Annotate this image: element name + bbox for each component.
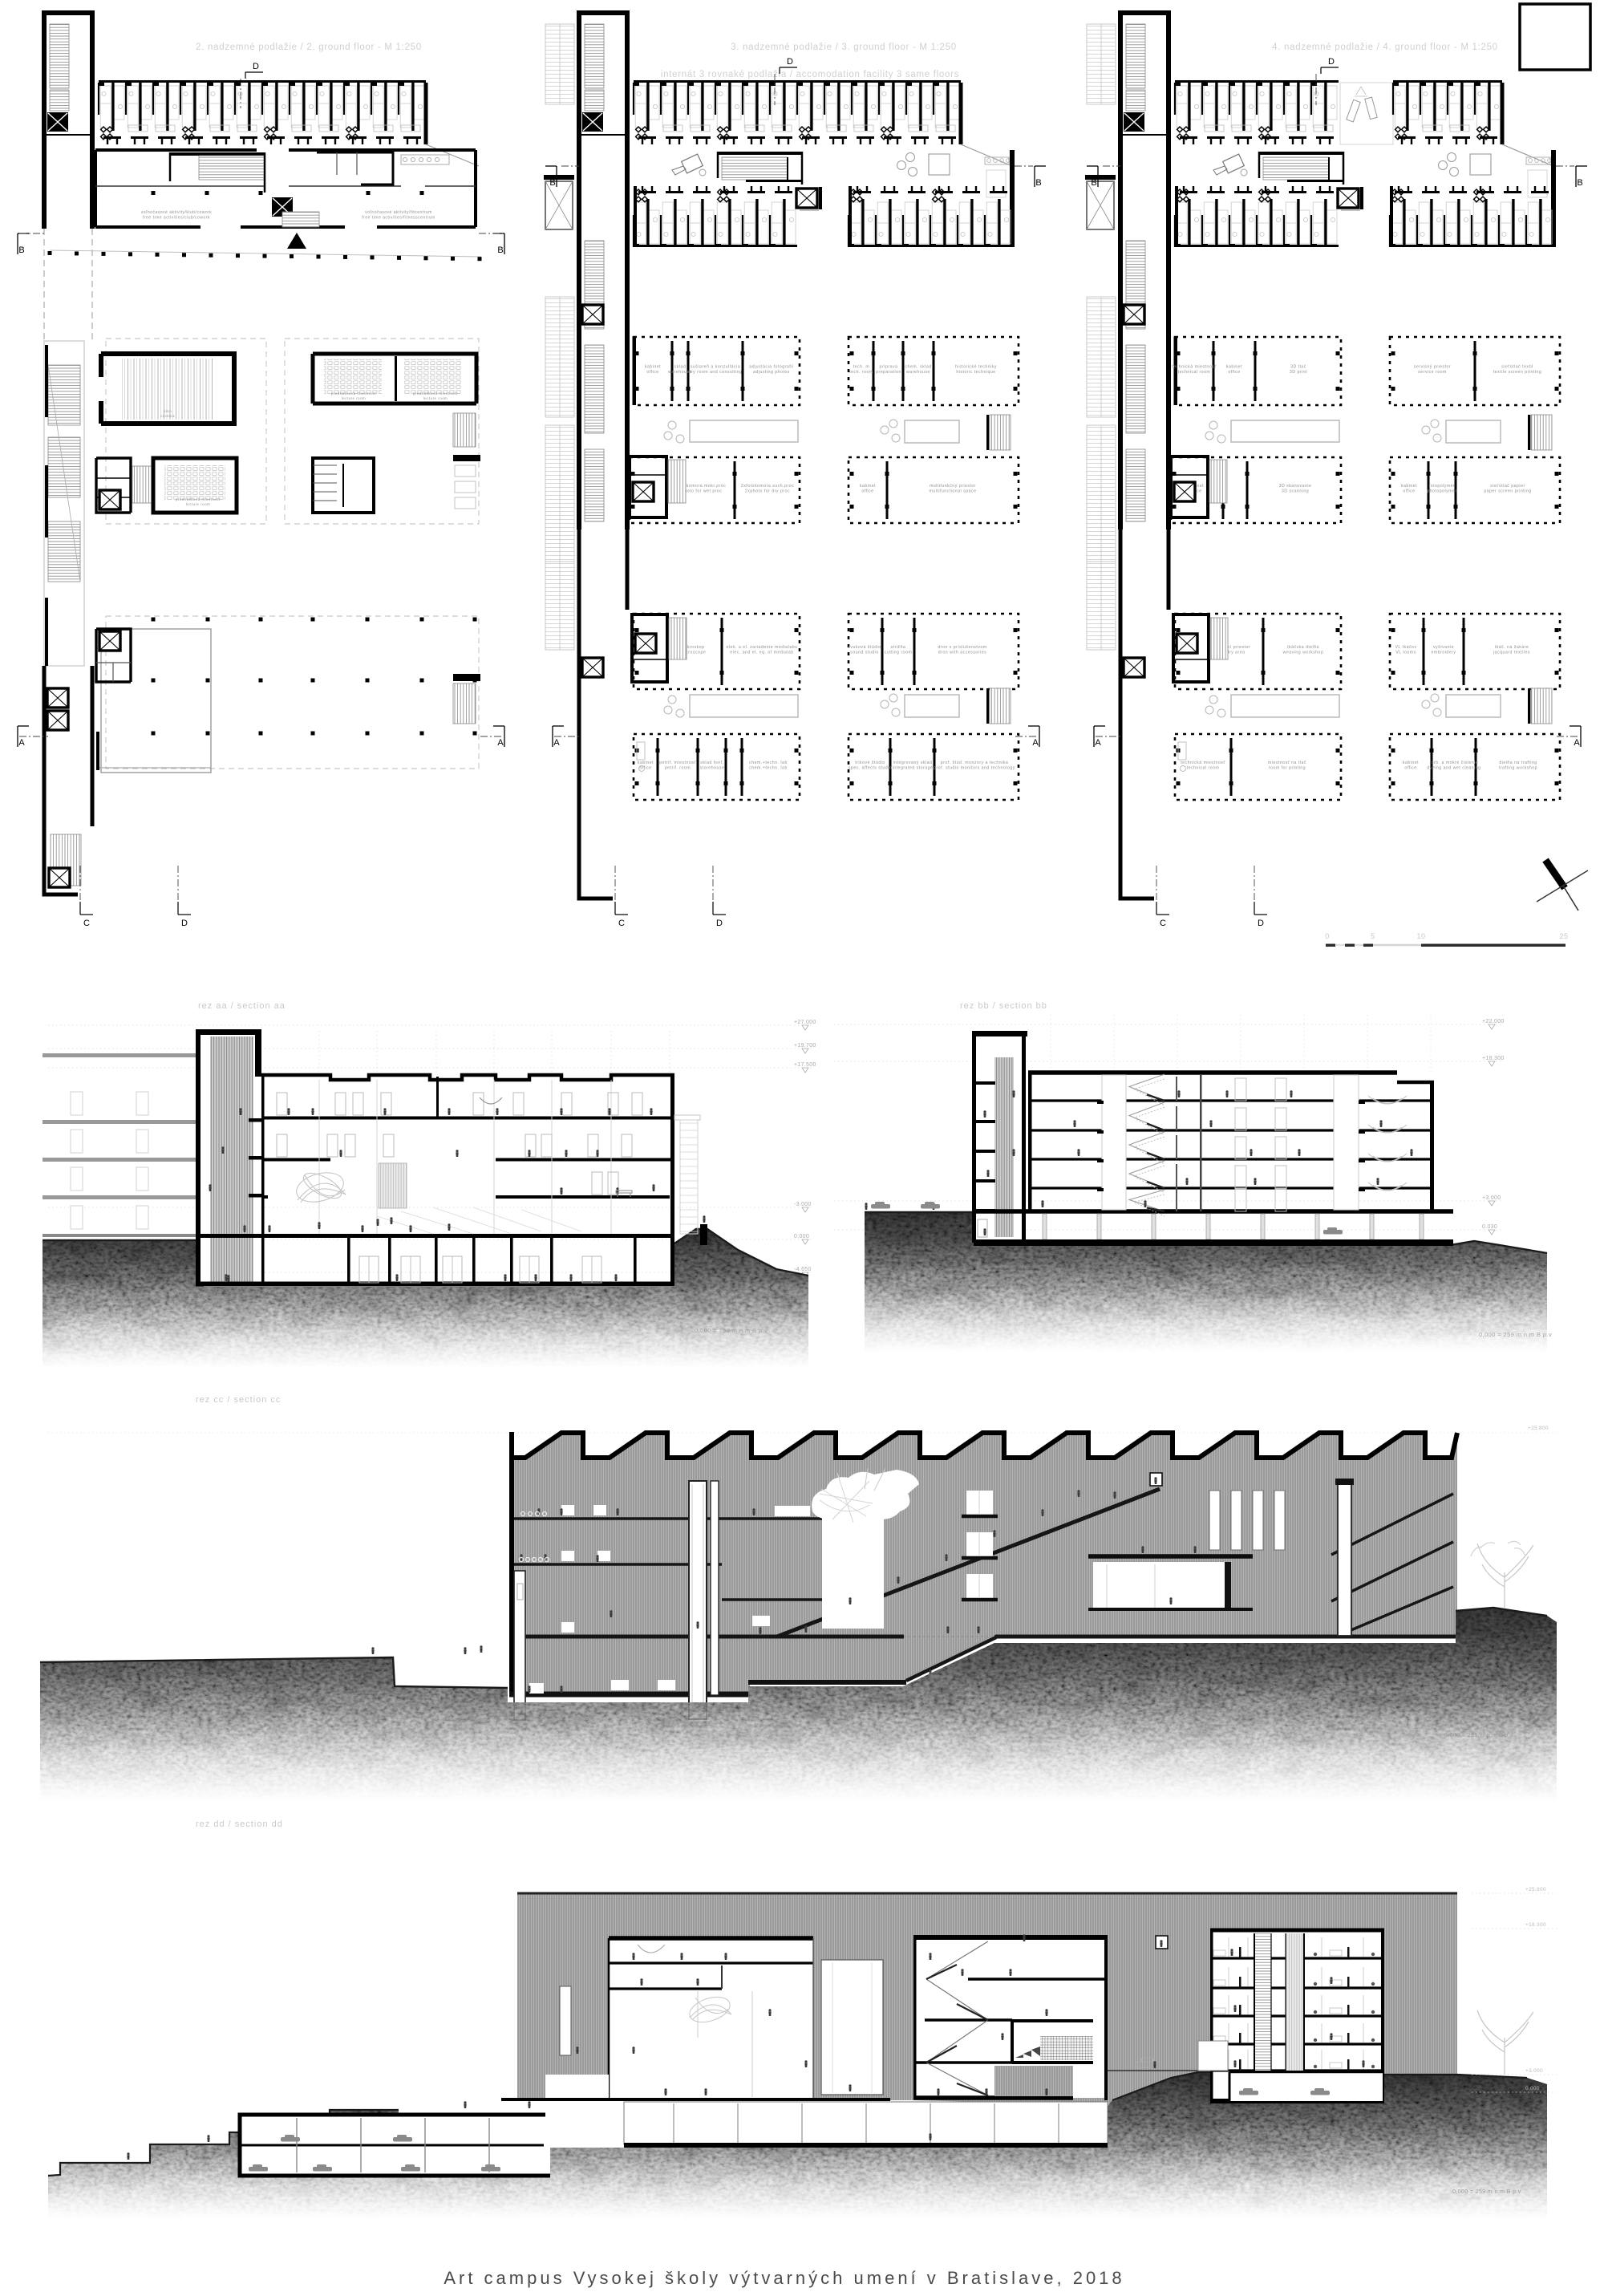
- svg-text:office: office: [1404, 766, 1416, 771]
- svg-text:+18.300: +18.300: [1482, 1056, 1505, 1061]
- svg-text:VL looms: VL looms: [1395, 651, 1416, 655]
- svg-text:voľnočasové aktivity/klub/cowo: voľnočasové aktivity/klub/cowork: [141, 210, 213, 215]
- svg-text:petrif. room: petrif. room: [665, 766, 691, 771]
- svg-text:B: B: [1091, 178, 1096, 188]
- svg-text:tech. room: tech. room: [849, 370, 873, 375]
- svg-text:kabinet: kabinet: [645, 365, 661, 370]
- svg-text:dron with accessories: dron with accessories: [938, 651, 986, 655]
- svg-text:10: 10: [1416, 932, 1425, 940]
- svg-text:office: office: [639, 766, 651, 771]
- svg-text:dyeing and wet cleaning: dyeing and wet cleaning: [1427, 766, 1480, 771]
- svg-text:0: 0: [1325, 932, 1330, 940]
- svg-text:technická miestnosť: technická miestnosť: [1172, 365, 1217, 370]
- svg-text:prednášková miestnosť: prednášková miestnosť: [331, 391, 376, 396]
- svg-text:-3.000: -3.000: [794, 1202, 812, 1207]
- svg-text:prof. studio monitors and tech: prof. studio monitors and technology: [934, 766, 1015, 771]
- svg-text:lecture room: lecture room: [186, 502, 210, 506]
- svg-text:lecture room: lecture room: [342, 396, 366, 400]
- svg-text:office: office: [1228, 370, 1240, 375]
- svg-text:sieťotlač papier: sieťotlač papier: [1490, 484, 1525, 489]
- svg-text:A: A: [1574, 738, 1580, 748]
- svg-text:kabinet: kabinet: [1403, 761, 1419, 765]
- svg-text:A: A: [1032, 738, 1039, 748]
- svg-text:paper screen printing: paper screen printing: [1484, 489, 1531, 494]
- svg-text:historic technique: historic technique: [956, 370, 995, 375]
- svg-text:rez cc / section cc: rez cc / section cc: [196, 1395, 281, 1405]
- svg-text:Art campus Vysokej školy výtva: Art campus Vysokej školy výtvarných umen…: [444, 2268, 1124, 2288]
- svg-text:tkáčska dielňa: tkáčska dielňa: [1287, 645, 1319, 650]
- svg-text:C: C: [618, 919, 625, 928]
- svg-text:sušiareň a konzultácia: sušiareň a konzultácia: [691, 365, 740, 370]
- svg-text:free time activities/club/cowo: free time activities/club/cowork: [143, 216, 210, 221]
- svg-text:trikové štúdio: trikové štúdio: [855, 761, 885, 765]
- svg-text:elek. a el. zariadenie mediala: elek. a el. zariadenie medialabu: [727, 645, 798, 650]
- svg-text:VL tkáčov: VL tkáčov: [1395, 645, 1416, 650]
- svg-text:internát 3 rovnaké podlažia /: internát 3 rovnaké podlažia / accomodati…: [661, 70, 959, 79]
- svg-text:0,000 = 259 m n.m B p.v: 0,000 = 259 m n.m B p.v: [1452, 2189, 1521, 2195]
- svg-text:vyšívanie: vyšívanie: [1433, 645, 1454, 650]
- svg-text:kabinet: kabinet: [860, 484, 876, 489]
- svg-text:room for printing: room for printing: [1269, 766, 1306, 771]
- svg-text:prof. štúd. monzory a technika: prof. štúd. monzory a technika: [941, 761, 1009, 765]
- svg-text:spec. affects studio: spec. affects studio: [849, 766, 892, 771]
- svg-text:A: A: [497, 738, 504, 748]
- svg-text:B: B: [497, 245, 503, 255]
- svg-text:storehouse: storehouse: [700, 766, 725, 771]
- svg-text:kabinet: kabinet: [638, 761, 654, 765]
- svg-text:embroidery: embroidery: [1432, 651, 1456, 655]
- svg-text:warehouse: warehouse: [906, 370, 930, 375]
- svg-text:2. nadzemné podlažie / 2. grou: 2. nadzemné podlažie / 2. ground floor -…: [196, 43, 422, 52]
- svg-text:+18.300: +18.300: [1525, 1922, 1546, 1928]
- svg-text:voľnočasové aktivity/fitcentru: voľnočasové aktivity/fitcentrum: [365, 210, 432, 215]
- svg-text:4. nadzemné podlažie / 4. grou: 4. nadzemné podlažie / 4. ground floor -…: [1272, 43, 1498, 52]
- svg-text:D: D: [716, 919, 723, 928]
- svg-text:dielňa na trafting: dielňa na trafting: [1499, 761, 1537, 765]
- svg-text:D: D: [1258, 919, 1264, 928]
- svg-text:adjusting photos: adjusting photos: [753, 370, 790, 375]
- svg-text:+25.800: +25.800: [1525, 1887, 1546, 1892]
- svg-text:chem.+techn. lab: chem.+techn. lab: [749, 761, 788, 765]
- svg-text:trafting workshop: trafting workshop: [1499, 766, 1537, 771]
- svg-text:office: office: [646, 370, 658, 375]
- svg-text:B: B: [549, 178, 555, 188]
- svg-text:25: 25: [1559, 932, 1568, 940]
- svg-text:-4.650: -4.650: [794, 1267, 812, 1272]
- svg-text:sieťotlač textil: sieťotlač textil: [1501, 365, 1533, 370]
- svg-text:farb. a mokré čistenie: farb. a mokré čistenie: [1430, 761, 1479, 765]
- svg-text:rez bb / section bb: rez bb / section bb: [960, 1001, 1047, 1011]
- svg-text:B: B: [1577, 178, 1582, 188]
- svg-text:+22.000: +22.000: [1482, 1019, 1505, 1024]
- svg-text:prednášková miestnosť: prednášková miestnosť: [413, 391, 458, 396]
- svg-text:zvuková štúdio: zvuková štúdio: [848, 645, 881, 650]
- svg-text:3D tlač: 3D tlač: [1290, 365, 1306, 370]
- svg-text:2xphoto for dry proc: 2xphoto for dry proc: [745, 489, 790, 494]
- svg-text:D: D: [1328, 57, 1335, 67]
- svg-text:historické techniky: historické techniky: [955, 365, 997, 370]
- svg-text:technická miestnosť: technická miestnosť: [1181, 761, 1225, 765]
- svg-text:weaving workshop: weaving workshop: [1283, 651, 1324, 655]
- svg-text:0.000: 0.000: [794, 1234, 809, 1239]
- svg-text:sklad horľ.: sklad horľ.: [700, 761, 724, 765]
- svg-text:kabinet: kabinet: [1226, 365, 1242, 370]
- svg-text:cutting room: cutting room: [885, 651, 913, 655]
- svg-text:sound studio: sound studio: [850, 651, 878, 655]
- svg-text:technical room: technical room: [1187, 766, 1220, 771]
- svg-text:chem.+techn. lab: chem.+techn. lab: [749, 766, 788, 771]
- svg-text:miestnosť na tlač: miestnosť na tlač: [1268, 761, 1306, 765]
- svg-text:D: D: [253, 62, 259, 71]
- svg-text:3D scanning: 3D scanning: [1282, 489, 1309, 494]
- svg-text:multifunctional space: multifunctional space: [930, 489, 977, 494]
- svg-text:A: A: [553, 738, 560, 748]
- svg-text:3D print: 3D print: [1290, 370, 1307, 375]
- svg-text:petrif. miestnosť: petrif. miestnosť: [659, 761, 696, 765]
- svg-text:rez dd / section dd: rez dd / section dd: [196, 1819, 283, 1829]
- svg-text:technical room: technical room: [1178, 370, 1211, 375]
- svg-text:fotopolymér: fotopolymér: [1429, 484, 1456, 489]
- svg-text:office: office: [1403, 489, 1415, 494]
- svg-text:cinema: cinema: [160, 414, 175, 418]
- svg-text:tkáč. na žakáre: tkáč. na žakáre: [1495, 645, 1529, 650]
- svg-text:B: B: [18, 245, 24, 255]
- svg-text:prednášková miestnosť: prednášková miestnosť: [176, 497, 221, 501]
- svg-text:sklad: sklad: [674, 365, 687, 370]
- svg-text:D: D: [787, 57, 793, 67]
- svg-text:D: D: [181, 919, 188, 928]
- svg-text:integrated storage: integrated storage: [893, 766, 934, 771]
- svg-text:0,000 = 259 m n.m B p.v: 0,000 = 259 m n.m B p.v: [1444, 1733, 1513, 1738]
- svg-text:+3.000: +3.000: [1525, 2068, 1543, 2074]
- svg-text:office: office: [861, 489, 873, 494]
- svg-text:3. nadzemné podlažie / 3. grou: 3. nadzemné podlažie / 3. ground floor -…: [731, 43, 957, 52]
- svg-text:multifunkčný priestor: multifunkčný priestor: [930, 484, 976, 489]
- svg-text:+25.800: +25.800: [1528, 1426, 1549, 1431]
- svg-text:chem. sklad: chem. sklad: [905, 365, 931, 370]
- svg-text:strižňa: strižňa: [891, 645, 906, 650]
- svg-text:A: A: [18, 738, 25, 748]
- svg-text:dron s príslušenstvom: dron s príslušenstvom: [938, 645, 986, 650]
- svg-text:jacquard textiles: jacquard textiles: [1493, 651, 1530, 655]
- svg-text:integrovaný sklad: integrovaný sklad: [893, 761, 933, 765]
- svg-text:+27.000: +27.000: [794, 1020, 816, 1025]
- svg-text:elec. and el. eq. of medialab: elec. and el. eq. of medialab: [730, 651, 793, 655]
- svg-text:lecture room: lecture room: [423, 396, 448, 400]
- svg-text:photopolymer: photopolymer: [1427, 489, 1456, 494]
- svg-text:rez aa / section aa: rez aa / section aa: [198, 1001, 286, 1011]
- svg-text:preparation: preparation: [876, 370, 901, 375]
- svg-text:3D skanovanie: 3D skanovanie: [1279, 484, 1312, 489]
- svg-text:kino: kino: [164, 409, 172, 413]
- svg-text:textile screen printing: textile screen printing: [1493, 370, 1542, 375]
- svg-text:+3.000: +3.000: [1482, 1195, 1501, 1201]
- svg-text:+17.500: +17.500: [794, 1062, 816, 1068]
- svg-text:free time activities/fitnessce: free time activities/fitnesscentrum: [362, 216, 435, 221]
- svg-text:service room: service room: [1418, 370, 1447, 375]
- svg-text:B: B: [1035, 178, 1041, 188]
- svg-text:C: C: [83, 919, 90, 928]
- svg-text:dry room and consulting: dry room and consulting: [689, 370, 743, 375]
- svg-text:C: C: [1160, 919, 1166, 928]
- svg-text:0.000: 0.000: [1525, 2086, 1540, 2091]
- svg-text:kabinet: kabinet: [1401, 484, 1417, 489]
- svg-text:tech. m: tech. m: [853, 365, 870, 370]
- svg-text:príprava: príprava: [879, 365, 897, 370]
- svg-text:+19.700: +19.700: [794, 1043, 816, 1049]
- svg-text:0.030: 0.030: [1482, 1224, 1497, 1230]
- svg-text:5: 5: [1371, 932, 1375, 940]
- svg-text:servisný priestor: servisný priestor: [1414, 365, 1451, 370]
- svg-text:2xfotokomora such.proc: 2xfotokomora such.proc: [741, 484, 794, 489]
- svg-text:adjustácia fotografií: adjustácia fotografií: [749, 365, 794, 370]
- svg-text:A: A: [1095, 738, 1101, 748]
